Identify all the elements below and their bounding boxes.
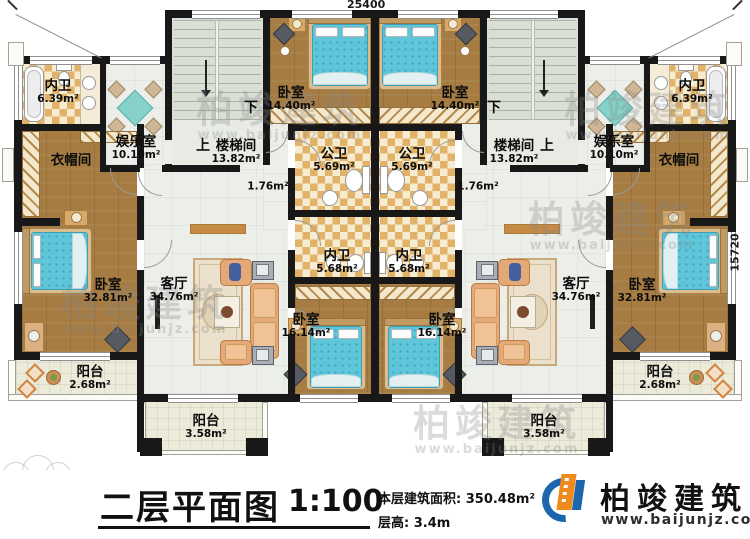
room-label-bed-master-right: 卧室32.81m² [618,278,667,304]
room-label-bed-mid-right: 卧室14.40m² [431,86,480,112]
room-label-hall-left: 1.76m² [247,181,288,192]
title-block: 二层平面图 1:100 本层建筑面积: 350.48m² 层高: 3.4m 柏竣… [0,470,750,539]
room-label-living-right: 客厅34.76m² [552,277,601,303]
room-label-balcony-side-right: 阳台2.68m² [639,365,680,391]
brand-url: www.baijunjz.com [601,512,750,528]
room-label-hall-right: 1.76m² [457,181,498,192]
room-label-bed-inner-left: 卧室16.14m² [282,313,331,339]
stair-up-label-left: 上 [196,135,210,155]
room-label-balcony-front-right: 阳台3.58m² [523,414,564,440]
room-label-pub-bath-left: 公卫5.69m² [313,147,354,173]
stair-down-label-left: 下 [244,97,258,117]
room-label-bed-master-left: 卧室32.81m² [84,278,133,304]
plan-scale: 1:100 [288,484,384,519]
room-label-cloak-right: 衣帽间 [659,154,700,169]
plan-title: 二层平面图 [100,480,280,529]
room-label-stair-left: 楼梯间13.82m² [212,139,261,165]
floor-plan-page: 25400 15720 内卫6.39m² 娱乐室10.10m² 衣帽间 楼梯间1… [0,0,750,539]
room-label-bed-mid-left: 卧室14.40m² [267,86,316,112]
title-underline [98,526,370,529]
room-label-bath-inner-left: 内卫5.68m² [316,249,357,275]
room-label-bath-small-left: 内卫6.39m² [37,79,78,105]
room-label-pub-bath-right: 公卫5.69m² [391,147,432,173]
room-label-balcony-side-left: 阳台2.68m² [69,365,110,391]
floor-area-text: 本层建筑面积: 350.48m² [378,488,535,507]
room-label-rec-right: 娱乐室10.10m² [590,135,639,161]
room-label-cloak-left: 衣帽间 [51,154,92,169]
brand-logo-icon [542,470,596,530]
room-label-rec-left: 娱乐室10.10m² [112,135,161,161]
stair-down-label-right: 下 [487,97,501,117]
dimension-top: 25400 [347,0,385,11]
room-label-bath-inner-right: 内卫5.68m² [388,249,429,275]
floor-height-text: 层高: 3.4m [378,512,450,531]
dimension-right: 15720 [729,233,742,271]
room-label-bath-small-right: 内卫6.39m² [671,79,712,105]
label-layer: 25400 15720 内卫6.39m² 娱乐室10.10m² 衣帽间 楼梯间1… [0,0,750,470]
stair-up-label-right: 上 [540,135,554,155]
room-label-stair-right: 楼梯间13.82m² [490,139,539,165]
room-label-bed-inner-right: 卧室16.14m² [418,313,467,339]
room-label-living-left: 客厅34.76m² [150,277,199,303]
watermark: 柏竣建筑www.baijunjz.com [528,201,696,255]
room-label-balcony-front-left: 阳台3.58m² [185,414,226,440]
